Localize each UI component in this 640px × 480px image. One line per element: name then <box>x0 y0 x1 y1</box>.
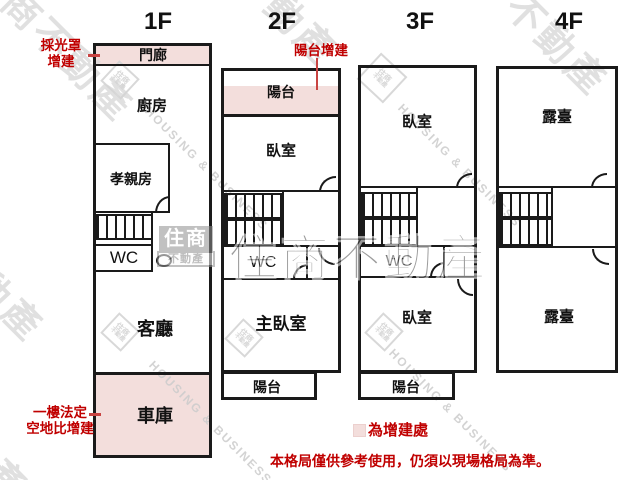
watermark-cjk-fragment: 不動產 <box>0 224 59 352</box>
room-label-terrace-top: 露臺 <box>542 106 572 127</box>
annotation-skylight-addition: 採光罩 增建 <box>32 38 90 71</box>
wall <box>168 143 170 213</box>
stairs-4f-flight-2 <box>499 218 553 246</box>
room-label-bedroom-top-3f: 臥室 <box>402 111 432 132</box>
wall <box>95 244 153 246</box>
stairs-2f-flight-1 <box>224 193 284 219</box>
stairs-3f-flight-1 <box>361 192 418 218</box>
room-label-balcony-top-2f: 陽台 <box>267 82 295 102</box>
room-label-garage: 車庫 <box>137 402 173 428</box>
floorplan-canvas: 商不動產 動產 不動產 不動產 動產 HOUSING & BUSINESS HO… <box>0 0 640 480</box>
room-label-balcony-bottom-2f: 陽台 <box>253 377 281 397</box>
stairs-4f-flight-1 <box>499 192 553 218</box>
room-label-wc-1f: WC <box>110 248 138 268</box>
wall <box>551 188 553 247</box>
wall <box>95 270 153 272</box>
room-label-porch: 門廊 <box>139 45 167 65</box>
annotation-ground-addition: 一樓法定 空地比增建 <box>22 405 98 438</box>
room-label-parents-room: 孝親房 <box>110 169 152 189</box>
room-label-kitchen: 廚房 <box>137 95 167 116</box>
wall <box>224 190 338 192</box>
wall <box>151 213 153 272</box>
room-label-living-room: 客廳 <box>137 315 173 341</box>
wall <box>499 246 618 248</box>
brand-watermark-text: 住商不動產 <box>228 219 488 290</box>
legend-addition-swatch <box>353 424 366 437</box>
floor-title-2f: 2F <box>268 8 296 36</box>
wall <box>95 143 170 145</box>
annotation-leader-line <box>89 413 101 416</box>
floor-title-3f: 3F <box>406 8 434 36</box>
wall <box>496 186 618 188</box>
annotation-leader-line <box>316 58 318 90</box>
legend-addition-label: 為增建處 <box>368 419 428 440</box>
annotation-balcony-addition: 陽台增建 <box>294 43 348 59</box>
brand-logo-top: 住商 <box>159 226 213 251</box>
disclaimer-text: 本格局僅供參考使用，仍須以現場格局為準。 <box>270 451 550 471</box>
stairs-1f <box>95 214 153 240</box>
floor-title-4f: 4F <box>555 8 583 36</box>
wall <box>93 372 212 375</box>
room-label-terrace-bottom: 露臺 <box>544 306 574 327</box>
brand-logo-bottom: 不動產 <box>157 251 215 267</box>
room-label-bedroom-2f: 臥室 <box>266 140 296 161</box>
room-label-balcony-bottom-3f: 陽台 <box>392 377 420 397</box>
floor-title-1f: 1F <box>144 8 172 36</box>
annotation-leader-line <box>88 54 100 57</box>
wall <box>221 114 341 117</box>
wall <box>95 211 170 213</box>
room-label-master-bedroom: 主臥室 <box>256 310 307 335</box>
room-label-bedroom-bottom-3f: 臥室 <box>402 307 432 328</box>
